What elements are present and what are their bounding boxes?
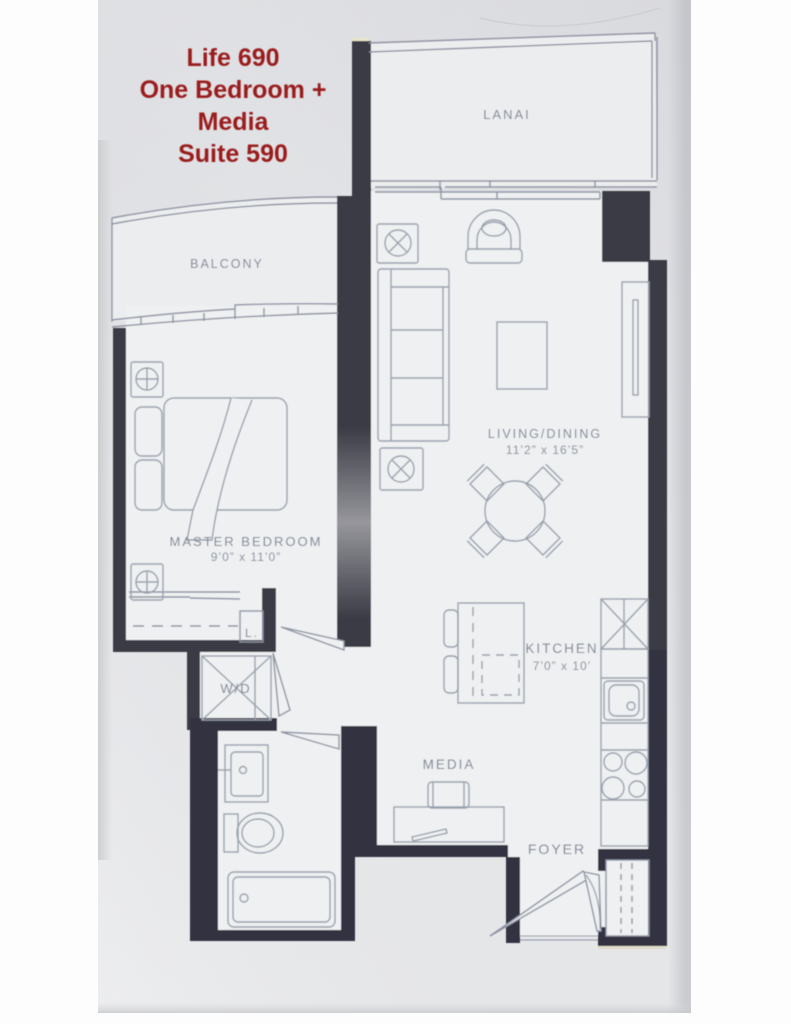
svg-text:MEDIA: MEDIA — [423, 757, 476, 772]
svg-text:KITCHEN: KITCHEN — [525, 641, 598, 656]
svg-text:LIVING/DINING: LIVING/DINING — [488, 427, 602, 441]
svg-text:11’2” x 16’5”: 11’2” x 16’5” — [506, 443, 584, 457]
svg-text:7’0” x 10’: 7’0” x 10’ — [533, 659, 592, 673]
svg-text:Life 690: Life 690 — [186, 44, 279, 72]
svg-text:W/D: W/D — [220, 681, 251, 696]
svg-text:One Bedroom +: One Bedroom + — [140, 76, 327, 104]
svg-text:Media: Media — [198, 108, 270, 136]
svg-text:MASTER BEDROOM: MASTER BEDROOM — [170, 534, 323, 549]
svg-text:LANAI: LANAI — [483, 107, 531, 122]
svg-text:Suite 590: Suite 590 — [178, 140, 288, 168]
svg-text:FOYER: FOYER — [528, 841, 586, 857]
svg-text:BALCONY: BALCONY — [190, 257, 264, 271]
svg-text:L.: L. — [245, 626, 259, 640]
svg-text:9’0” x 11’0”: 9’0” x 11’0” — [211, 550, 281, 564]
